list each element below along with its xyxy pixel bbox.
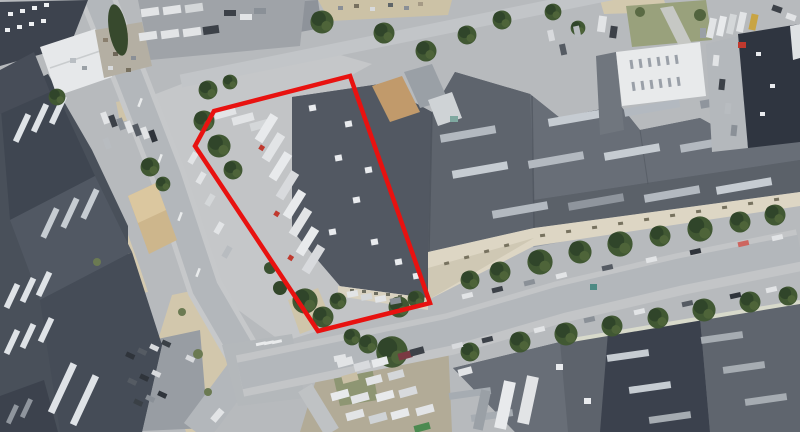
vehicle	[718, 79, 725, 91]
vehicle	[254, 8, 266, 14]
tree	[224, 161, 243, 180]
tree	[602, 316, 623, 337]
left-industrial-complex	[0, 0, 177, 432]
vehicle	[700, 28, 706, 38]
tree	[223, 75, 238, 90]
tree	[730, 212, 751, 233]
tree	[765, 205, 786, 226]
tree	[692, 298, 715, 321]
tree	[648, 308, 669, 329]
tree	[545, 4, 562, 21]
vehicle	[738, 42, 746, 48]
tree	[156, 177, 171, 192]
vehicle	[724, 103, 731, 115]
tree	[490, 262, 511, 283]
tree	[568, 240, 591, 263]
tree	[330, 293, 347, 310]
tree	[416, 41, 437, 62]
vehicle	[224, 10, 236, 16]
tree	[740, 292, 761, 313]
tree	[779, 287, 798, 306]
vehicle	[730, 125, 737, 137]
tree	[374, 23, 395, 44]
tree	[510, 332, 531, 353]
tree	[607, 231, 632, 256]
tree	[527, 249, 552, 274]
top-right-white-building	[616, 42, 706, 106]
tree	[650, 226, 671, 247]
top-right-navy-building	[738, 24, 800, 148]
tree	[344, 329, 361, 346]
vehicle	[240, 14, 252, 20]
tree	[687, 216, 712, 241]
tree	[310, 10, 333, 33]
satellite-map-view[interactable]	[0, 0, 800, 432]
vehicle	[712, 55, 719, 67]
tree	[461, 271, 480, 290]
tree	[207, 134, 230, 157]
tree	[458, 26, 477, 45]
tree	[199, 81, 218, 100]
tree	[493, 11, 512, 30]
aerial-imagery	[0, 0, 800, 432]
tree	[141, 158, 160, 177]
tree	[49, 89, 66, 106]
tree	[461, 343, 480, 362]
tree	[359, 335, 378, 354]
tree	[554, 322, 577, 345]
